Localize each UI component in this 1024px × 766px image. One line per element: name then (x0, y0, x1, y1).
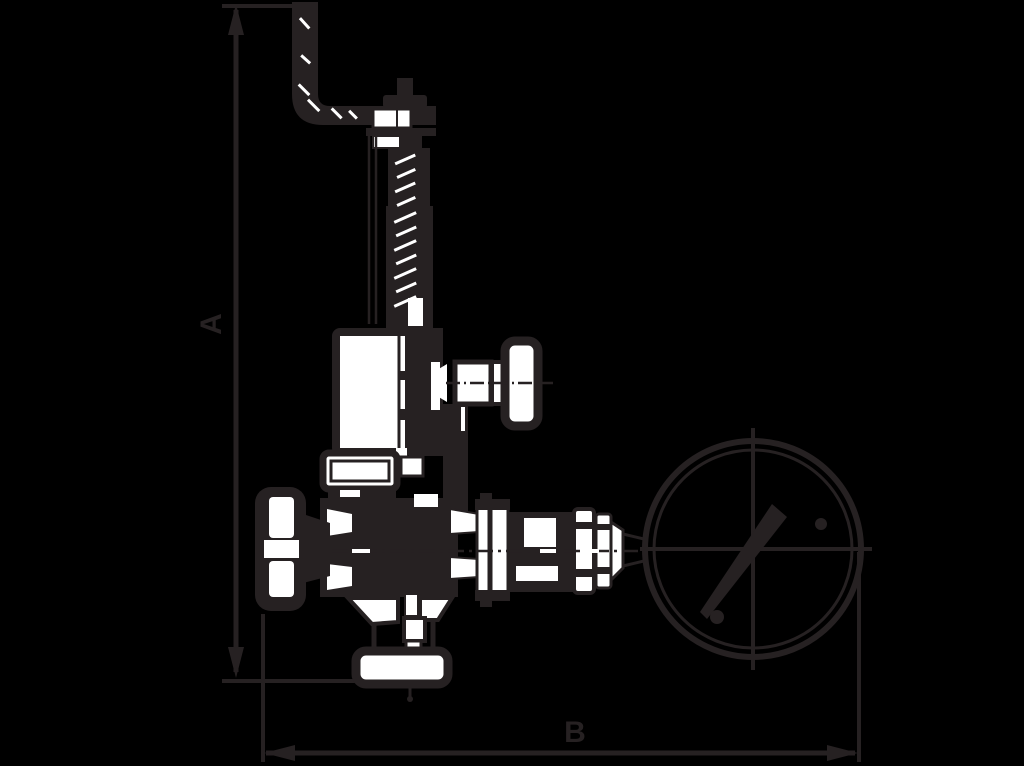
dimension-label-b: B (564, 716, 586, 749)
handwheel (255, 487, 330, 611)
body-top-highlight (414, 494, 438, 507)
tee-wedge (437, 364, 447, 402)
needle-tail-dot (710, 610, 724, 624)
body-face-left-bottom (327, 564, 352, 590)
valve-dimension-drawing: A B (0, 0, 1024, 766)
collar-base-band (328, 489, 396, 498)
arrowhead-a-top (228, 4, 244, 35)
hex-facet (574, 522, 594, 529)
body-shoulder-left (348, 598, 398, 624)
gasket-wedge-top (450, 509, 479, 534)
cylinder-highlight-bottom (516, 566, 558, 581)
spindle-highlight (408, 298, 423, 326)
collar-base-highlight (340, 490, 360, 497)
spring-bonnet (336, 332, 410, 460)
hex-facet (596, 524, 611, 530)
outlet-flange (356, 651, 448, 684)
bolt-stub-top (480, 493, 492, 501)
test-knob-assembly (409, 328, 553, 512)
cylinder-highlight-top (524, 518, 556, 547)
wheel-hub (264, 540, 299, 558)
gasket-wedge-bottom (450, 557, 479, 579)
collar-side-block (401, 457, 423, 476)
pressure-gauge (640, 428, 872, 670)
arrowhead-a-bottom (228, 647, 244, 678)
centerline-white-dash (352, 549, 370, 553)
valve-seat (404, 618, 425, 641)
centerline-white-dash (540, 549, 556, 553)
wheel-rim-top (269, 497, 294, 538)
adjuster-nut-shadow (400, 136, 422, 148)
arrowhead-b-right (827, 745, 858, 761)
wheel-shaft (303, 514, 330, 583)
threaded-spindle (369, 130, 433, 332)
centerline-white-dash (585, 549, 599, 553)
down-pipe-highlight (461, 407, 465, 431)
gauge-needle (700, 504, 787, 619)
outlet-centerline-dot (407, 696, 413, 702)
tube-divider (399, 409, 410, 420)
drawing-canvas: A B (0, 0, 1024, 766)
dial-screw-dot (815, 518, 827, 530)
hex-facet (574, 569, 594, 577)
cap-bar (383, 95, 427, 108)
arrowhead-b-left (264, 745, 295, 761)
lock-nut (373, 109, 411, 128)
tube-divider (399, 371, 410, 380)
collar-ring (323, 453, 397, 489)
dimension-label-a: A (195, 313, 228, 335)
stem-passage (405, 594, 418, 616)
spindle-tip (397, 78, 413, 96)
hex-facet (596, 567, 611, 574)
wheel-rim-bottom (269, 561, 294, 597)
bonnet-collar (323, 453, 423, 498)
bolt-stub-bottom (480, 599, 492, 607)
